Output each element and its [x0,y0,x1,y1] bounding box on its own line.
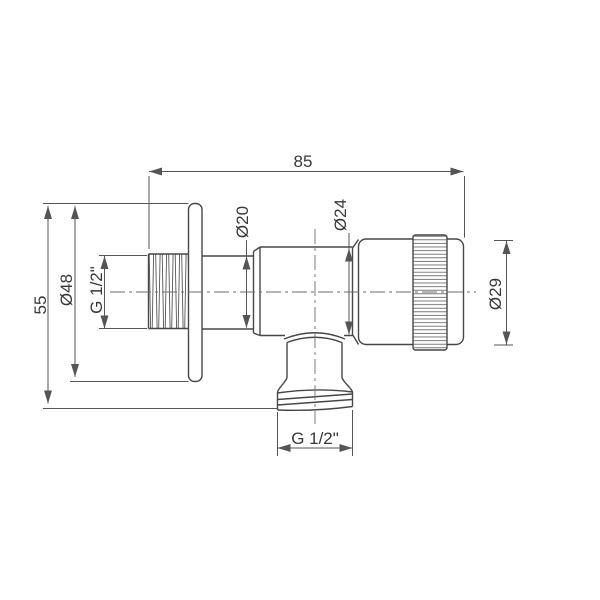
dim-label-handle-diameter: Ø29 [486,278,505,310]
wall-flange [189,204,203,382]
technical-drawing-page: 85 55 Ø48 G 1/2" Ø20 Ø24 [0,0,600,600]
dim-label-inlet-thread: G 1/2" [87,266,106,314]
dimension-body-diameter: Ø24 [331,199,353,335]
dimension-handle-diameter: Ø29 [486,241,513,346]
inlet-thread [149,254,191,329]
dim-label-flange-diameter: Ø48 [57,274,76,306]
dim-label-pipe-diameter: Ø20 [233,206,252,238]
dimension-pipe-diameter: Ø20 [233,206,252,328]
knurl-band [413,235,447,350]
dim-label-overall-length: 85 [294,152,313,171]
dim-label-body-diameter: Ø24 [331,199,350,231]
dim-label-outlet-thread: G 1/2" [291,429,339,448]
angle-valve-technical-drawing: 85 55 Ø48 G 1/2" Ø20 Ø24 [0,0,600,600]
dim-label-overall-height: 55 [31,296,50,315]
